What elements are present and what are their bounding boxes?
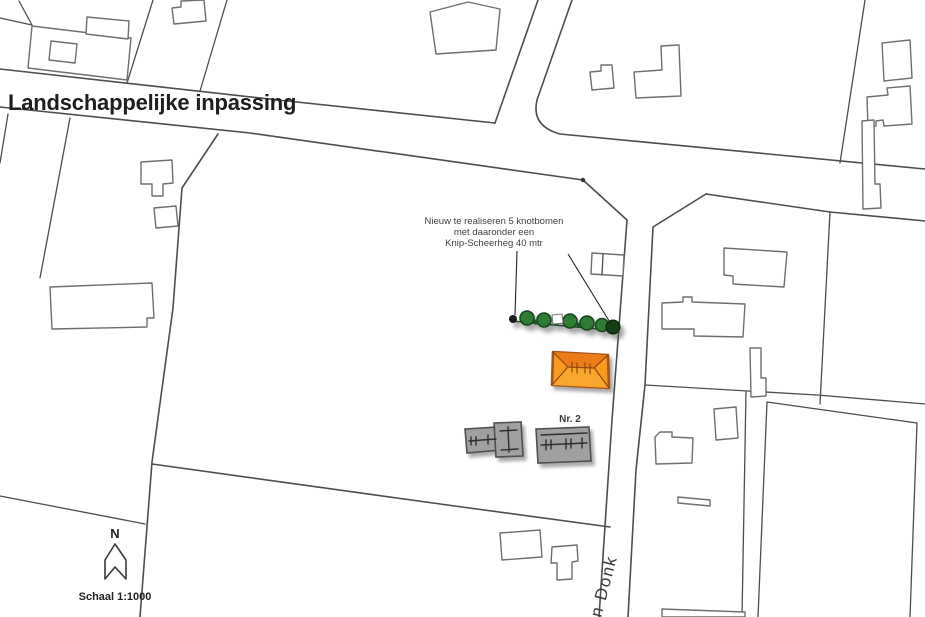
- parcel-quad-west: [758, 402, 767, 617]
- parcel-line-left-diagonal: [40, 118, 70, 278]
- parcel-quad-east: [910, 423, 917, 617]
- annotation-line-3: Knip-Scheerheg 40 mtr: [445, 238, 543, 249]
- building-at-road-edge: [591, 253, 624, 276]
- north-arrow-group: N Schaal 1:1000: [79, 526, 152, 603]
- building-small-rect-east: [714, 407, 738, 440]
- existing-tree-dark-blob: [606, 320, 620, 334]
- building-chimney-strip: [750, 348, 766, 397]
- diagonal-road-west-edge: [495, 0, 538, 123]
- building-bottom-partial: [662, 609, 745, 617]
- building-left-large: [50, 283, 154, 329]
- building-east-of-road-a: [724, 248, 787, 287]
- north-label: N: [110, 526, 119, 541]
- tree-row-start-dot: [509, 315, 517, 323]
- landscape-plan-canvas: Nieuw te realiseren 5 knotbomen met daar…: [0, 0, 925, 617]
- building-right-edge-rect: [882, 40, 912, 81]
- building-topleft-inner: [49, 41, 77, 63]
- building-number-label: Nr. 2: [559, 414, 581, 425]
- knotboom-2: [537, 313, 551, 327]
- parcel-corner-topleft-1: [0, 18, 32, 25]
- knotboom-3: [563, 314, 577, 328]
- parcel-line-right-vertical: [820, 212, 830, 404]
- annotation-leader-left: [515, 251, 517, 315]
- building-north-small: [590, 65, 614, 90]
- annotation-line-1: Nieuw te realiseren 5 knotbomen: [425, 216, 564, 227]
- parcel-corner-topleft-2: [19, 1, 32, 25]
- building-field-shed: [154, 206, 178, 228]
- hedge-shrub-1: [533, 319, 538, 324]
- building-east-of-road-c: [655, 432, 693, 464]
- existing-gray-buildings: [465, 422, 591, 463]
- building-field-house: [141, 160, 173, 196]
- tree-row-marker-square: [552, 314, 563, 324]
- building-thin-sliver: [678, 497, 710, 506]
- parcel-line-right-horizontal: [645, 385, 925, 404]
- field-south-boundary: [152, 464, 610, 527]
- building-east-of-road-b: [662, 297, 745, 337]
- street-donk-east-edge: [628, 194, 706, 617]
- parcel-strip-line: [742, 392, 746, 617]
- annotation-line-2: met daaronder een: [454, 227, 534, 238]
- parcel-quad-north: [767, 402, 917, 423]
- annotation-knotbomen: Nieuw te realiseren 5 knotbomen met daar…: [425, 216, 611, 324]
- parcel-line-far-left: [0, 114, 8, 163]
- page-title: Landschappelijke inpassing: [8, 90, 296, 115]
- building-north-lshape: [634, 45, 681, 98]
- hedge-shrub-3: [576, 322, 581, 327]
- junction-node-dot: [581, 178, 585, 182]
- knotboom-4: [580, 316, 594, 330]
- road-main-lower-edge-left: [0, 107, 583, 180]
- parcel-line-bottom-left: [0, 496, 145, 524]
- scale-label: Schaal 1:1000: [79, 591, 152, 603]
- knotbomen-tree-row: [509, 311, 620, 334]
- new-building-orange: [552, 352, 609, 388]
- site-plan-map: Nieuw te realiseren 5 knotbomen met daar…: [0, 0, 925, 617]
- building-topcenter-house: [172, 0, 206, 24]
- building-bottom-left-rect: [500, 530, 542, 560]
- building-bottom-tab-shape: [551, 545, 578, 580]
- street-donk-west-edge: [583, 180, 627, 617]
- road-main-lower-edge-right: [706, 194, 925, 221]
- north-arrow-icon: [105, 544, 126, 579]
- parcel-line-topright-vertical: [840, 0, 865, 163]
- street-name-label: n Donk: [587, 553, 622, 617]
- field-west-boundary: [140, 134, 218, 617]
- building-topcenter-pentagon: [430, 2, 500, 54]
- knotboom-1: [520, 311, 534, 325]
